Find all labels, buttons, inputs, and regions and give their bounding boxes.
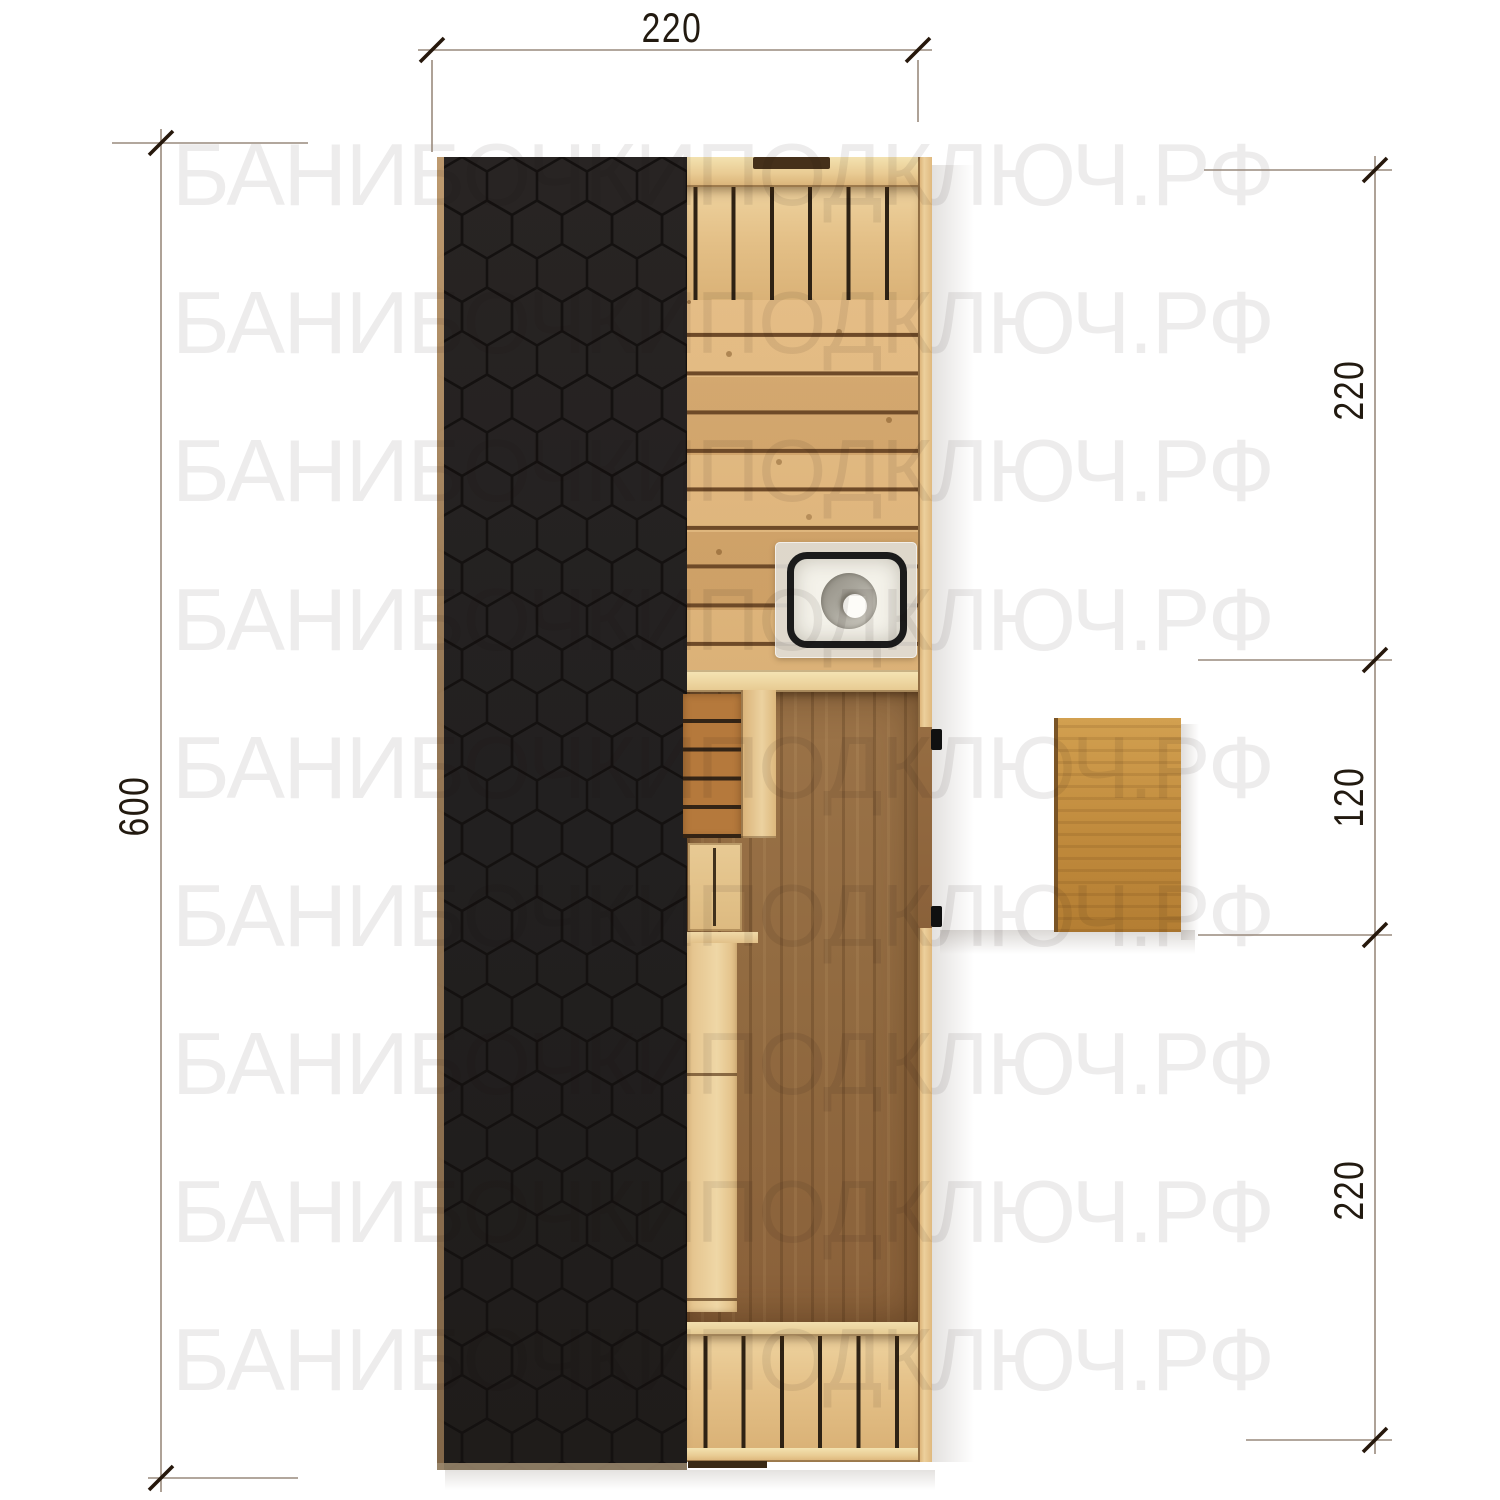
dimension-right-top: 220 (1327, 334, 1371, 446)
dimension-lines-layer (0, 0, 1500, 1500)
sauna-floor-plan-top-view: БАНИБОЧКИПОДКЛЮЧ.РФ БАНИБОЧКИПОДКЛЮЧ.РФ … (0, 0, 1500, 1500)
dimension-height-left: 600 (112, 750, 156, 862)
dimension-ticks (149, 38, 1387, 1490)
dimension-width-top: 220 (616, 6, 728, 50)
dimension-right-bottom: 220 (1327, 1134, 1371, 1246)
dimension-right-middle: 120 (1327, 741, 1371, 853)
